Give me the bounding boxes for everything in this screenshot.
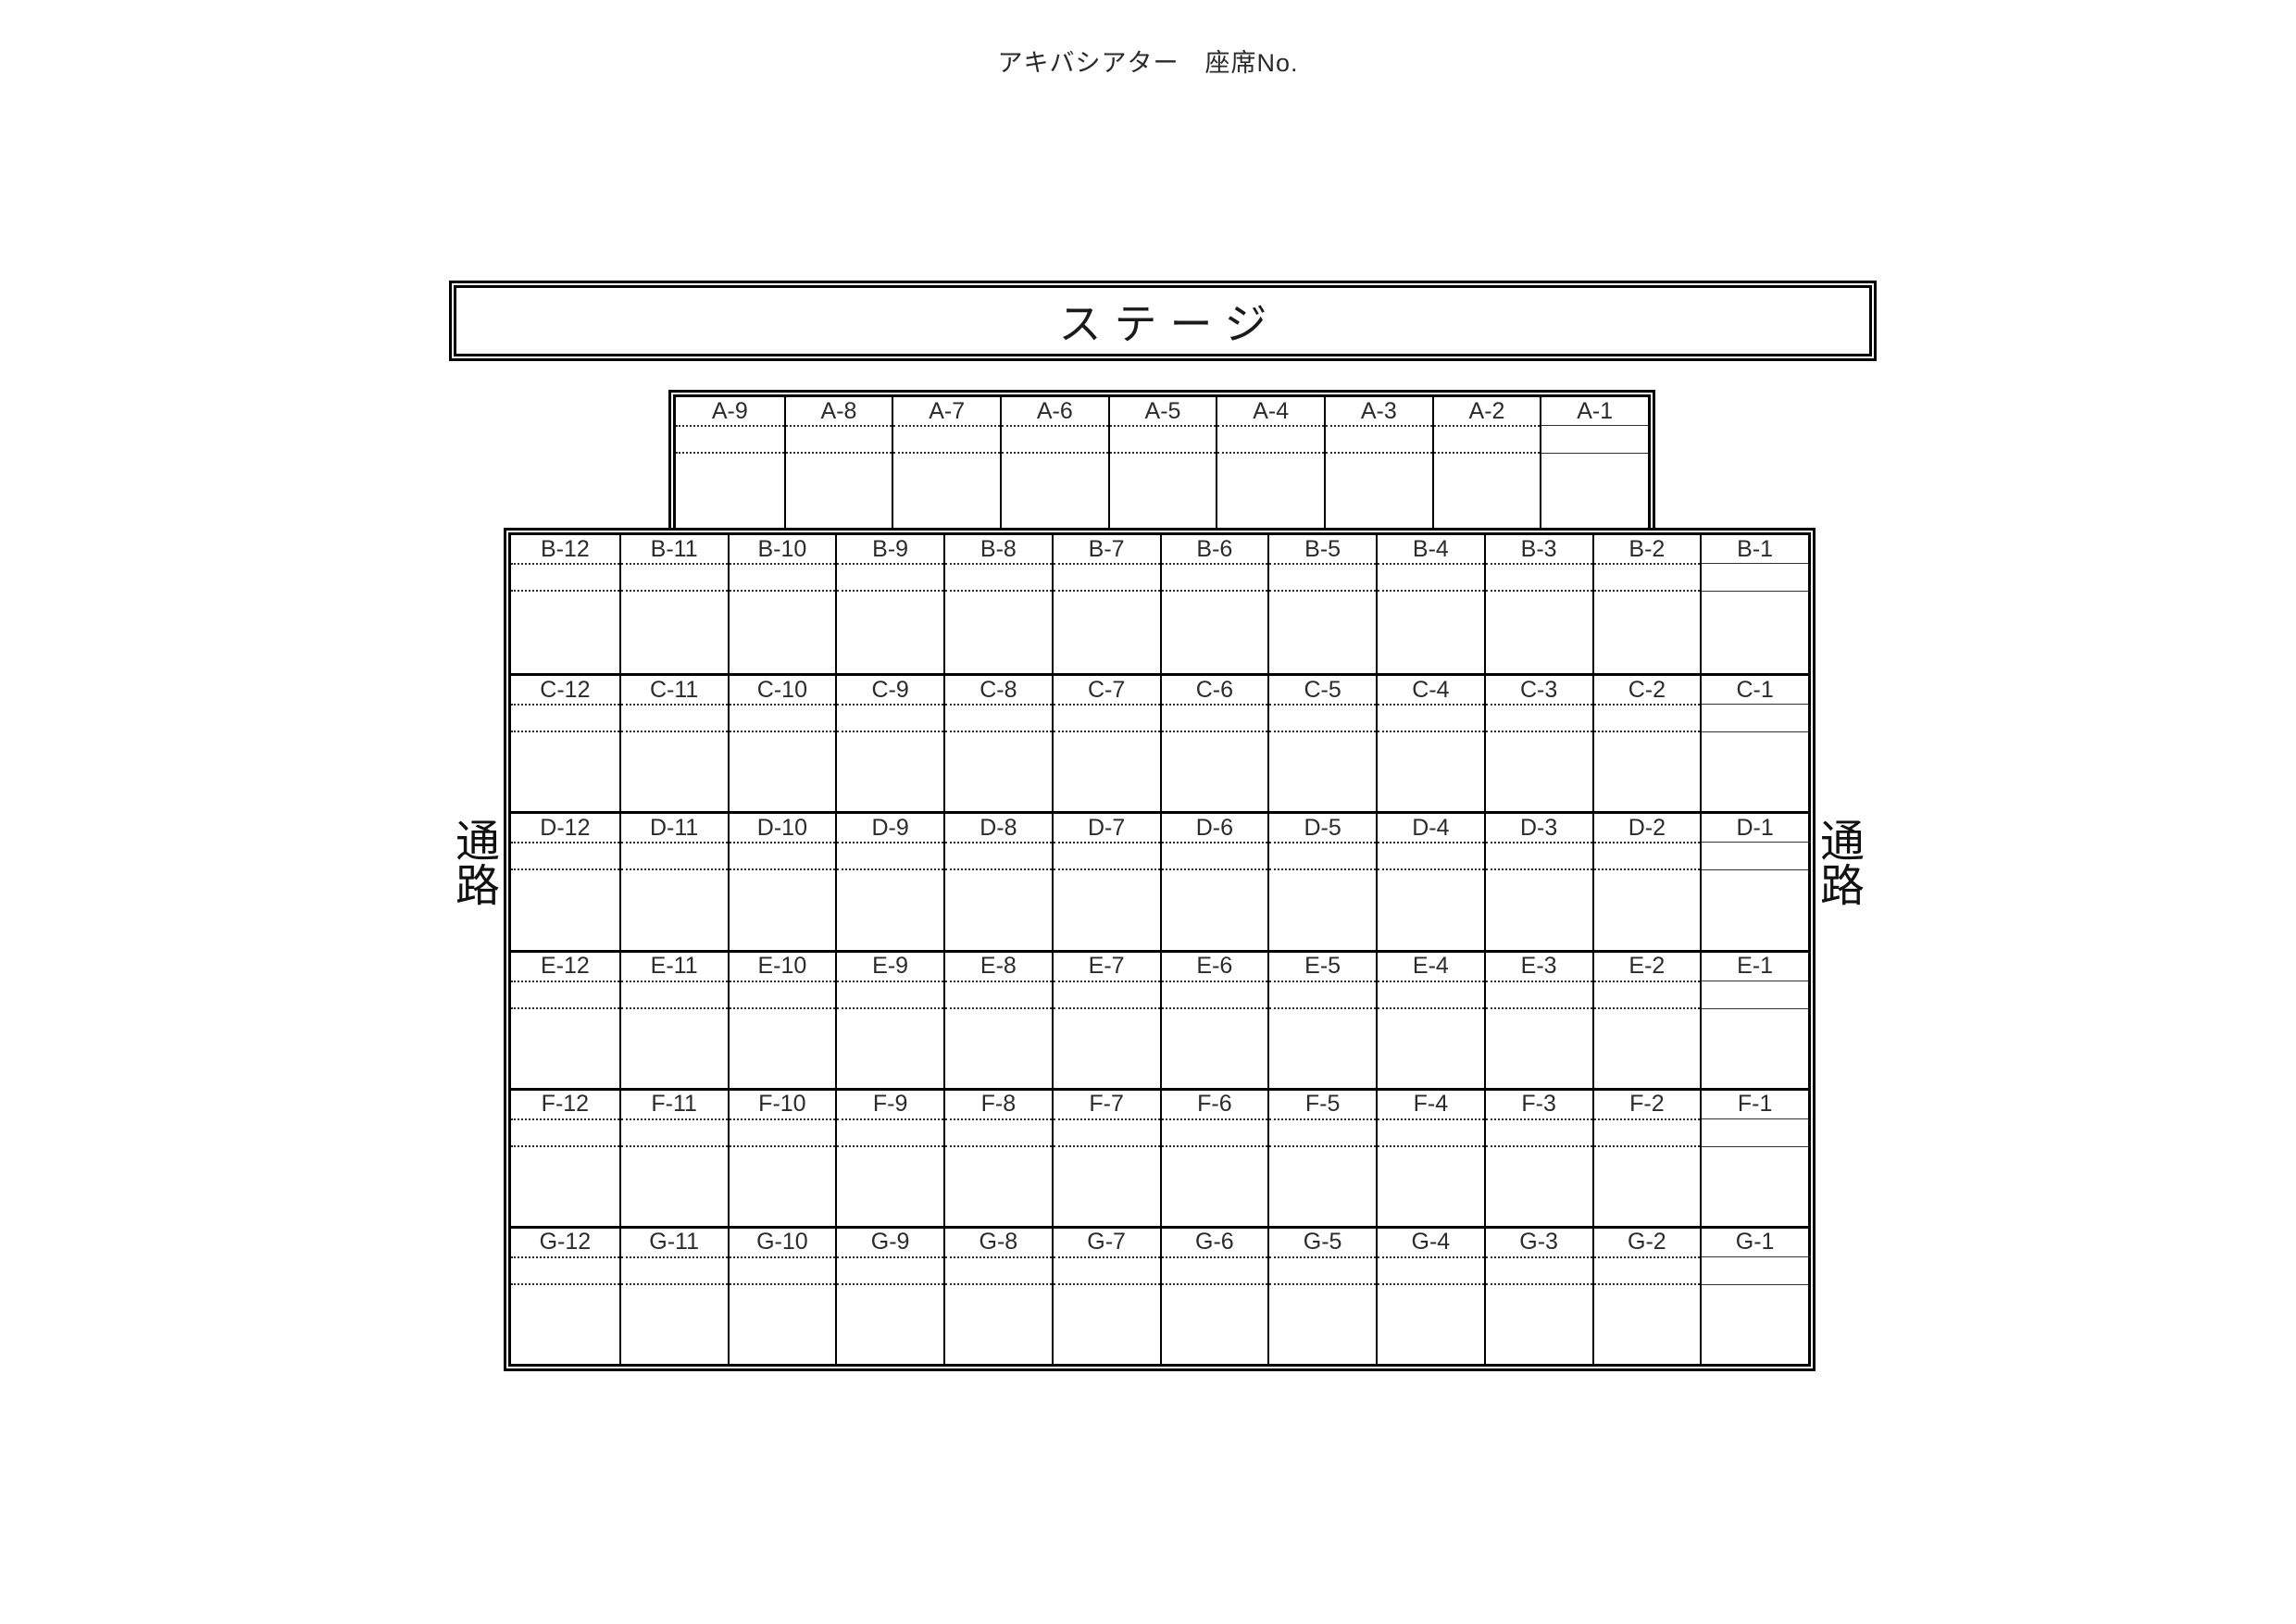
seat-F-1: F-1 xyxy=(1700,1091,1808,1226)
seat-writein-strip xyxy=(621,1256,728,1285)
seat-C-1: C-1 xyxy=(1700,676,1808,811)
seat-number-label: B-3 xyxy=(1486,535,1592,563)
seat-writein-area xyxy=(893,454,1000,528)
seat-number-label: E-3 xyxy=(1486,953,1592,981)
seat-writein-area xyxy=(621,1147,728,1226)
seat-writein-strip xyxy=(1110,425,1217,454)
seat-F-8: F-8 xyxy=(943,1091,1052,1226)
seat-B-10: B-10 xyxy=(728,535,836,673)
seat-G-7: G-7 xyxy=(1052,1229,1160,1364)
page-title: アキバシアター 座席No. xyxy=(0,43,2296,79)
seat-writein-strip xyxy=(1594,842,1701,870)
seat-writein-area xyxy=(1702,1285,1808,1364)
seat-writein-strip xyxy=(1054,563,1160,592)
seat-G-2: G-2 xyxy=(1592,1229,1701,1364)
seat-number-label: G-6 xyxy=(1162,1229,1268,1256)
seat-writein-area xyxy=(1702,592,1808,673)
seat-number-label: A-2 xyxy=(1434,397,1541,425)
seat-number-label: F-12 xyxy=(511,1091,619,1118)
seat-A-5: A-5 xyxy=(1108,397,1217,528)
seat-D-11: D-11 xyxy=(619,814,728,949)
seat-B-5: B-5 xyxy=(1267,535,1376,673)
seat-number-label: F-3 xyxy=(1486,1091,1592,1118)
seat-writein-area xyxy=(1269,732,1376,811)
seat-writein-strip xyxy=(1378,842,1484,870)
seat-number-label: C-3 xyxy=(1486,676,1592,704)
seat-number-label: E-1 xyxy=(1702,953,1808,981)
seat-writein-strip xyxy=(1162,981,1268,1009)
seat-writein-strip xyxy=(621,563,728,592)
seat-writein-area xyxy=(730,870,836,949)
seat-number-label: G-4 xyxy=(1378,1229,1484,1256)
seat-writein-area xyxy=(1702,732,1808,811)
seat-writein-strip xyxy=(1378,704,1484,732)
seat-writein-strip xyxy=(1162,563,1268,592)
seat-B-4: B-4 xyxy=(1376,535,1484,673)
seat-writein-strip xyxy=(1162,1118,1268,1147)
seat-number-label: F-10 xyxy=(730,1091,836,1118)
seat-writein-strip xyxy=(511,981,619,1009)
seat-number-label: E-9 xyxy=(837,953,943,981)
seat-writein-strip xyxy=(730,1118,836,1147)
seat-writein-strip xyxy=(1594,1256,1701,1285)
seat-F-6: F-6 xyxy=(1160,1091,1268,1226)
seat-writein-area xyxy=(1162,1147,1268,1226)
aisle-label-right: 通路 xyxy=(1820,820,1868,909)
seat-writein-strip xyxy=(1702,842,1808,870)
seat-E-4: E-4 xyxy=(1376,953,1484,1088)
seat-number-label: C-12 xyxy=(511,676,619,704)
seat-number-label: G-9 xyxy=(837,1229,943,1256)
seat-writein-area xyxy=(1162,870,1268,949)
seat-writein-strip xyxy=(1269,1118,1376,1147)
seat-G-10: G-10 xyxy=(728,1229,836,1364)
seat-writein-area xyxy=(1594,1147,1701,1226)
seat-writein-area xyxy=(1269,1285,1376,1364)
seat-F-7: F-7 xyxy=(1052,1091,1160,1226)
seat-number-label: F-8 xyxy=(945,1091,1052,1118)
aisle-label-left: 通路 xyxy=(455,820,504,909)
seat-number-label: A-4 xyxy=(1217,397,1324,425)
seat-B-8: B-8 xyxy=(943,535,1052,673)
seat-G-11: G-11 xyxy=(619,1229,728,1364)
seat-writein-strip xyxy=(945,842,1052,870)
seat-writein-area xyxy=(730,592,836,673)
seat-number-label: C-1 xyxy=(1702,676,1808,704)
seat-writein-area xyxy=(837,1147,943,1226)
seat-writein-area xyxy=(1702,1147,1808,1226)
seat-writein-strip xyxy=(511,704,619,732)
seat-E-3: E-3 xyxy=(1484,953,1592,1088)
seat-number-label: F-11 xyxy=(621,1091,728,1118)
seat-writein-area xyxy=(1486,1009,1592,1088)
seat-writein-strip xyxy=(786,425,892,454)
seat-writein-strip xyxy=(730,563,836,592)
seat-B-1: B-1 xyxy=(1700,535,1808,673)
seat-writein-strip xyxy=(1269,704,1376,732)
seat-writein-area xyxy=(511,1009,619,1088)
seat-writein-strip xyxy=(945,1118,1052,1147)
seat-writein-strip xyxy=(945,563,1052,592)
seat-writein-area xyxy=(1054,1285,1160,1364)
seat-number-label: D-3 xyxy=(1486,814,1592,842)
seat-C-12: C-12 xyxy=(511,676,619,811)
seat-writein-area xyxy=(511,870,619,949)
seat-A-9: A-9 xyxy=(676,397,784,528)
seat-E-12: E-12 xyxy=(511,953,619,1088)
seat-G-9: G-9 xyxy=(835,1229,943,1364)
seat-number-label: D-11 xyxy=(621,814,728,842)
seat-writein-strip xyxy=(945,704,1052,732)
seat-writein-area xyxy=(1162,1285,1268,1364)
seat-writein-strip xyxy=(676,425,784,454)
seat-writein-strip xyxy=(1378,1256,1484,1285)
seat-writein-area xyxy=(837,1009,943,1088)
seat-G-8: G-8 xyxy=(943,1229,1052,1364)
seat-writein-strip xyxy=(511,842,619,870)
seat-A-7: A-7 xyxy=(892,397,1000,528)
seat-D-9: D-9 xyxy=(835,814,943,949)
seat-writein-strip xyxy=(945,981,1052,1009)
seat-writein-strip xyxy=(511,563,619,592)
seat-C-2: C-2 xyxy=(1592,676,1701,811)
seat-A-6: A-6 xyxy=(1000,397,1108,528)
seat-writein-area xyxy=(1486,732,1592,811)
seat-writein-strip xyxy=(621,1118,728,1147)
seat-E-8: E-8 xyxy=(943,953,1052,1088)
seat-writein-area xyxy=(945,592,1052,673)
seat-number-label: D-4 xyxy=(1378,814,1484,842)
seat-number-label: E-8 xyxy=(945,953,1052,981)
seat-writein-strip xyxy=(893,425,1000,454)
seat-writein-area xyxy=(621,1285,728,1364)
seat-number-label: B-11 xyxy=(621,535,728,563)
seat-row-block-e: E-12E-11E-10E-9E-8E-7E-6E-5E-4E-3E-2E-1 xyxy=(511,950,1808,1088)
seat-writein-area xyxy=(1594,732,1701,811)
seat-number-label: D-9 xyxy=(837,814,943,842)
seat-number-label: C-9 xyxy=(837,676,943,704)
seat-writein-area xyxy=(1486,1147,1592,1226)
seat-number-label: C-5 xyxy=(1269,676,1376,704)
seat-number-label: G-8 xyxy=(945,1229,1052,1256)
seat-writein-area xyxy=(786,454,892,528)
seat-number-label: A-6 xyxy=(1002,397,1108,425)
seat-writein-area xyxy=(1110,454,1217,528)
seat-number-label: A-5 xyxy=(1110,397,1217,425)
seat-row-block-b: B-12B-11B-10B-9B-8B-7B-6B-5B-4B-3B-2B-1 xyxy=(511,535,1808,673)
seat-writein-strip xyxy=(837,981,943,1009)
seat-number-label: B-12 xyxy=(511,535,619,563)
front-row-a-block: A-9A-8A-7A-6A-5A-4A-3A-2A-1 xyxy=(668,390,1655,528)
seat-B-6: B-6 xyxy=(1160,535,1268,673)
seat-writein-strip xyxy=(1486,842,1592,870)
seat-B-7: B-7 xyxy=(1052,535,1160,673)
seat-number-label: F-6 xyxy=(1162,1091,1268,1118)
seat-number-label: D-1 xyxy=(1702,814,1808,842)
seat-row-block-c: C-12C-11C-10C-9C-8C-7C-6C-5C-4C-3C-2C-1 xyxy=(511,673,1808,811)
seat-number-label: G-2 xyxy=(1594,1229,1701,1256)
seat-number-label: D-12 xyxy=(511,814,619,842)
seat-number-label: D-8 xyxy=(945,814,1052,842)
seat-G-6: G-6 xyxy=(1160,1229,1268,1364)
seat-writein-area xyxy=(1269,1147,1376,1226)
seat-F-9: F-9 xyxy=(835,1091,943,1226)
main-seating-grid: B-12B-11B-10B-9B-8B-7B-6B-5B-4B-3B-2B-1 … xyxy=(504,528,1816,1371)
seat-A-2: A-2 xyxy=(1432,397,1541,528)
seat-C-3: C-3 xyxy=(1484,676,1592,811)
seat-writein-strip xyxy=(1326,425,1432,454)
seat-B-9: B-9 xyxy=(835,535,943,673)
seat-writein-area xyxy=(1378,1009,1484,1088)
seat-D-12: D-12 xyxy=(511,814,619,949)
seat-number-label: E-4 xyxy=(1378,953,1484,981)
seat-writein-area xyxy=(945,732,1052,811)
seat-C-4: C-4 xyxy=(1376,676,1484,811)
seat-F-4: F-4 xyxy=(1376,1091,1484,1226)
seat-writein-area xyxy=(1486,592,1592,673)
seat-D-2: D-2 xyxy=(1592,814,1701,949)
seat-writein-area xyxy=(730,732,836,811)
seat-writein-area xyxy=(1162,732,1268,811)
seat-number-label: A-1 xyxy=(1541,397,1648,425)
seat-writein-strip xyxy=(621,842,728,870)
seat-writein-strip xyxy=(1217,425,1324,454)
seat-writein-strip xyxy=(837,842,943,870)
seat-E-11: E-11 xyxy=(619,953,728,1088)
seat-number-label: C-8 xyxy=(945,676,1052,704)
seat-writein-area xyxy=(621,592,728,673)
seat-writein-area xyxy=(511,1147,619,1226)
seat-writein-strip xyxy=(1594,563,1701,592)
seat-number-label: C-10 xyxy=(730,676,836,704)
seat-writein-area xyxy=(730,1147,836,1226)
seat-E-10: E-10 xyxy=(728,953,836,1088)
seat-number-label: D-7 xyxy=(1054,814,1160,842)
seat-G-3: G-3 xyxy=(1484,1229,1592,1364)
seat-number-label: E-5 xyxy=(1269,953,1376,981)
seat-writein-strip xyxy=(837,1118,943,1147)
seat-number-label: B-7 xyxy=(1054,535,1160,563)
seat-D-3: D-3 xyxy=(1484,814,1592,949)
seat-number-label: G-7 xyxy=(1054,1229,1160,1256)
seat-G-1: G-1 xyxy=(1700,1229,1808,1364)
seat-writein-area xyxy=(1378,1147,1484,1226)
stage-box: ステージ xyxy=(449,281,1877,361)
seat-writein-strip xyxy=(1486,563,1592,592)
seat-number-label: E-6 xyxy=(1162,953,1268,981)
seat-writein-area xyxy=(1541,454,1648,528)
seat-writein-strip xyxy=(1054,1118,1160,1147)
seat-C-7: C-7 xyxy=(1052,676,1160,811)
seat-writein-area xyxy=(837,592,943,673)
seat-writein-area xyxy=(1594,870,1701,949)
seat-writein-strip xyxy=(1162,1256,1268,1285)
seat-number-label: C-4 xyxy=(1378,676,1484,704)
seat-writein-strip xyxy=(1269,842,1376,870)
seat-number-label: F-9 xyxy=(837,1091,943,1118)
seat-writein-area xyxy=(1594,1285,1701,1364)
seat-writein-strip xyxy=(1054,981,1160,1009)
seat-writein-strip xyxy=(1702,1118,1808,1147)
seat-writein-area xyxy=(1378,1285,1484,1364)
seat-C-11: C-11 xyxy=(619,676,728,811)
seat-number-label: D-6 xyxy=(1162,814,1268,842)
seat-writein-strip xyxy=(1378,981,1484,1009)
seat-writein-strip xyxy=(1486,1118,1592,1147)
seat-number-label: B-10 xyxy=(730,535,836,563)
seat-A-4: A-4 xyxy=(1216,397,1324,528)
seat-writein-area xyxy=(730,1009,836,1088)
seat-number-label: C-7 xyxy=(1054,676,1160,704)
seat-writein-strip xyxy=(511,1256,619,1285)
seat-writein-area xyxy=(730,1285,836,1364)
seat-number-label: G-12 xyxy=(511,1229,619,1256)
seat-F-12: F-12 xyxy=(511,1091,619,1226)
seat-writein-strip xyxy=(621,704,728,732)
seat-writein-strip xyxy=(1486,981,1592,1009)
seat-writein-area xyxy=(1486,870,1592,949)
seat-writein-strip xyxy=(1378,1118,1484,1147)
seat-writein-strip xyxy=(1702,1256,1808,1285)
seat-E-7: E-7 xyxy=(1052,953,1160,1088)
seat-row-block-g: G-12G-11G-10G-9G-8G-7G-6G-5G-4G-3G-2G-1 xyxy=(511,1226,1808,1364)
seat-writein-strip xyxy=(730,981,836,1009)
seat-writein-strip xyxy=(1269,563,1376,592)
seat-number-label: D-5 xyxy=(1269,814,1376,842)
seat-number-label: B-4 xyxy=(1378,535,1484,563)
seat-writein-area xyxy=(511,592,619,673)
seat-writein-strip xyxy=(1594,981,1701,1009)
seat-writein-area xyxy=(511,732,619,811)
seat-A-3: A-3 xyxy=(1324,397,1432,528)
seat-writein-strip xyxy=(1702,981,1808,1009)
seat-writein-strip xyxy=(511,1118,619,1147)
seat-number-label: E-11 xyxy=(621,953,728,981)
seat-writein-area xyxy=(945,870,1052,949)
seat-E-9: E-9 xyxy=(835,953,943,1088)
seat-writein-strip xyxy=(1054,1256,1160,1285)
seat-writein-area xyxy=(1378,592,1484,673)
seat-number-label: E-10 xyxy=(730,953,836,981)
seat-writein-area xyxy=(1054,592,1160,673)
seat-G-12: G-12 xyxy=(511,1229,619,1364)
seat-writein-area xyxy=(1434,454,1541,528)
seat-F-3: F-3 xyxy=(1484,1091,1592,1226)
seat-number-label: E-2 xyxy=(1594,953,1701,981)
seat-writein-area xyxy=(837,1285,943,1364)
seat-row-block-d: D-12D-11D-10D-9D-8D-7D-6D-5D-4D-3D-2D-1 xyxy=(511,811,1808,949)
seat-C-10: C-10 xyxy=(728,676,836,811)
seat-number-label: B-6 xyxy=(1162,535,1268,563)
seat-number-label: F-5 xyxy=(1269,1091,1376,1118)
seat-number-label: A-9 xyxy=(676,397,784,425)
seat-writein-area xyxy=(1002,454,1108,528)
seat-number-label: G-10 xyxy=(730,1229,836,1256)
seat-C-8: C-8 xyxy=(943,676,1052,811)
seat-B-11: B-11 xyxy=(619,535,728,673)
seat-C-6: C-6 xyxy=(1160,676,1268,811)
seat-writein-area xyxy=(1269,592,1376,673)
seat-writein-area xyxy=(621,1009,728,1088)
seat-writein-area xyxy=(1054,870,1160,949)
seat-C-9: C-9 xyxy=(835,676,943,811)
seat-B-3: B-3 xyxy=(1484,535,1592,673)
seat-writein-area xyxy=(621,870,728,949)
seat-writein-strip xyxy=(837,704,943,732)
seat-F-2: F-2 xyxy=(1592,1091,1701,1226)
seat-number-label: B-5 xyxy=(1269,535,1376,563)
seat-writein-area xyxy=(1378,732,1484,811)
seat-writein-strip xyxy=(730,704,836,732)
seat-E-1: E-1 xyxy=(1700,953,1808,1088)
seat-writein-area xyxy=(1702,1009,1808,1088)
seat-writein-strip xyxy=(1594,704,1701,732)
seat-writein-strip xyxy=(837,1256,943,1285)
seat-number-label: A-7 xyxy=(893,397,1000,425)
seat-G-4: G-4 xyxy=(1376,1229,1484,1364)
seat-D-10: D-10 xyxy=(728,814,836,949)
seat-number-label: G-1 xyxy=(1702,1229,1808,1256)
seat-G-5: G-5 xyxy=(1267,1229,1376,1364)
seat-D-5: D-5 xyxy=(1267,814,1376,949)
seat-writein-area xyxy=(676,454,784,528)
seat-number-label: F-7 xyxy=(1054,1091,1160,1118)
seat-writein-strip xyxy=(1594,1118,1701,1147)
seat-writein-strip xyxy=(837,563,943,592)
seat-F-10: F-10 xyxy=(728,1091,836,1226)
seat-number-label: B-1 xyxy=(1702,535,1808,563)
seat-number-label: D-10 xyxy=(730,814,836,842)
seat-E-6: E-6 xyxy=(1160,953,1268,1088)
seat-writein-area xyxy=(1702,870,1808,949)
stage-label: ステージ xyxy=(1058,291,1279,352)
seat-writein-strip xyxy=(1054,842,1160,870)
seat-F-5: F-5 xyxy=(1267,1091,1376,1226)
seat-number-label: A-8 xyxy=(786,397,892,425)
seat-number-label: E-7 xyxy=(1054,953,1160,981)
seat-C-5: C-5 xyxy=(1267,676,1376,811)
seat-writein-strip xyxy=(1702,704,1808,732)
seat-writein-strip xyxy=(1162,704,1268,732)
seat-writein-strip xyxy=(1162,842,1268,870)
seat-number-label: F-2 xyxy=(1594,1091,1701,1118)
seat-writein-strip xyxy=(1486,1256,1592,1285)
seat-writein-area xyxy=(1594,592,1701,673)
seat-writein-strip xyxy=(730,842,836,870)
seat-writein-strip xyxy=(1054,704,1160,732)
seat-writein-area xyxy=(945,1285,1052,1364)
seat-writein-area xyxy=(837,732,943,811)
seat-writein-area xyxy=(945,1147,1052,1226)
seat-number-label: B-9 xyxy=(837,535,943,563)
seat-E-2: E-2 xyxy=(1592,953,1701,1088)
seat-writein-area xyxy=(1054,732,1160,811)
seat-writein-area xyxy=(1054,1009,1160,1088)
seat-number-label: C-6 xyxy=(1162,676,1268,704)
seat-D-1: D-1 xyxy=(1700,814,1808,949)
seat-writein-strip xyxy=(1486,704,1592,732)
seat-writein-area xyxy=(1594,1009,1701,1088)
seat-number-label: F-4 xyxy=(1378,1091,1484,1118)
seat-writein-strip xyxy=(1378,563,1484,592)
seat-writein-strip xyxy=(1269,981,1376,1009)
seat-F-11: F-11 xyxy=(619,1091,728,1226)
seat-number-label: F-1 xyxy=(1702,1091,1808,1118)
seat-writein-strip xyxy=(730,1256,836,1285)
seat-row-block-f: F-12F-11F-10F-9F-8F-7F-6F-5F-4F-3F-2F-1 xyxy=(511,1088,1808,1226)
seat-number-label: B-2 xyxy=(1594,535,1701,563)
seat-writein-area xyxy=(1162,592,1268,673)
